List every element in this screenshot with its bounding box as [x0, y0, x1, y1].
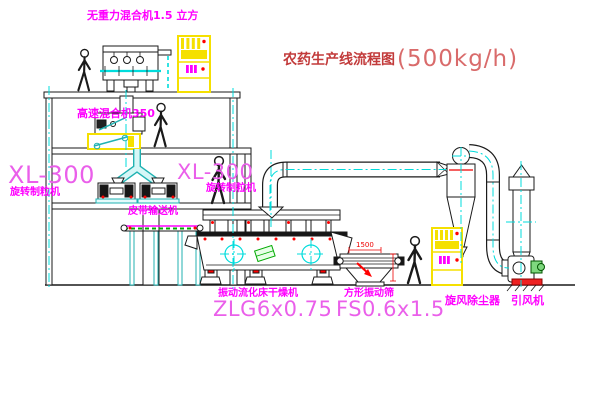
label-screen-model: FS0.6x1.5: [336, 299, 445, 320]
label-granulator-left-model: XL-300: [8, 163, 95, 187]
label-fan: 引风机: [511, 295, 544, 306]
label-cyclone: 旋风除尘器: [445, 295, 500, 306]
label-granulator-left-name: 旋转制粒机: [10, 188, 60, 198]
label-dryer-model: ZLG6x0.75: [213, 299, 332, 320]
fan-drawing: [502, 256, 545, 291]
control-cabinet-top-drawing: [178, 36, 210, 92]
person-roof: [78, 49, 89, 90]
label-granulator-right-name: 旋转制粒机: [206, 184, 256, 194]
title-text: 农药生产线流程图: [283, 49, 395, 69]
high-speed-mixer-drawing: [88, 96, 145, 149]
label-high-speed-mixer: 高速混合机350: [77, 108, 155, 119]
label-granulator-right-model: XL-300: [177, 162, 253, 183]
gravity-mixer-drawing: [100, 46, 171, 92]
diagram-title: 农药生产线流程图 (500kg/h): [283, 46, 518, 72]
label-gravity-mixer: 无重力混合机1.5 立方: [87, 10, 198, 21]
person-ground: [408, 237, 421, 283]
title-capacity: (500kg/h): [397, 46, 518, 72]
flow-diagram-canvas: 农药生产线流程图 (500kg/h) 无重力混合机1.5 立方 高速混合机350…: [0, 0, 600, 403]
fluid-bed-dryer-drawing: [185, 210, 352, 284]
label-screen-dimension: 1500: [356, 242, 374, 249]
control-cabinet-ground-drawing: [432, 228, 462, 285]
label-belt-conveyor: 皮带输送机: [128, 207, 178, 217]
granulator-right-drawing: [138, 178, 179, 203]
person-second-floor: [155, 103, 167, 146]
belt-conveyor-drawing: [121, 225, 203, 285]
granulator-left-drawing: [96, 178, 137, 203]
